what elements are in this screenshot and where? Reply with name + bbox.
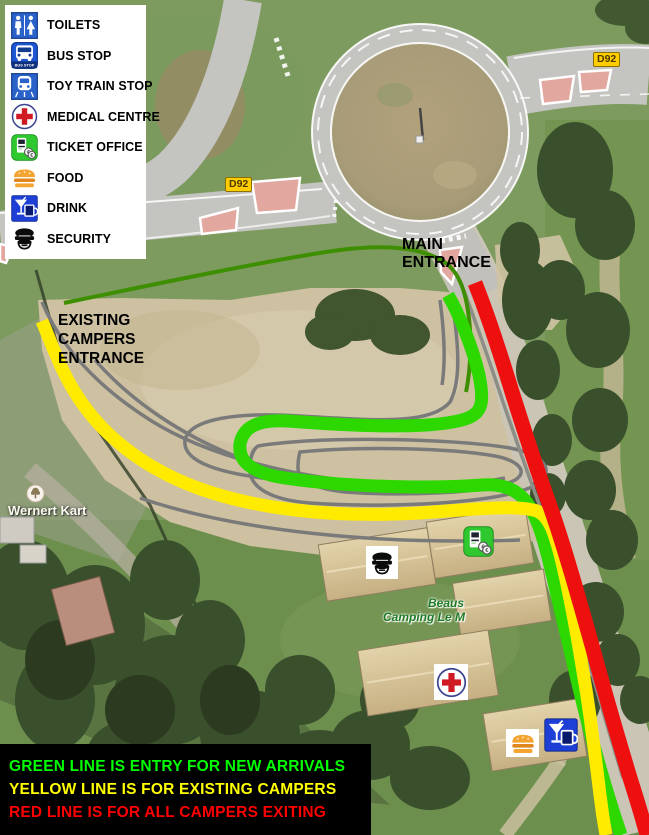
legend-label: MEDICAL CENTRE: [47, 110, 160, 124]
toilets-icon: [11, 12, 38, 39]
security-icon: [11, 225, 38, 252]
ticket-office-icon: [11, 134, 38, 161]
legend-label: FOOD: [47, 171, 84, 185]
medical-centre-map-icon: [434, 664, 468, 700]
camping-site-label: Beaus Camping Le M: [366, 596, 482, 624]
toy-train-icon: [11, 73, 38, 100]
legend-item-drink: DRINK: [11, 193, 146, 224]
road-badge-d92-west: D92: [225, 177, 252, 192]
security-map-icon: [366, 546, 398, 579]
legend-item-security: SECURITY: [11, 224, 146, 255]
svg-text:BUS STOP: BUS STOP: [15, 63, 35, 68]
main-entrance-label: MAIN ENTRANCE: [402, 236, 508, 271]
legend: TOILETS BUS STOP BUS STOP: [5, 5, 146, 259]
yellow-line-note: YELLOW LINE IS FOR EXISTING CAMPERS: [9, 778, 371, 801]
bus-stop-icon: BUS STOP: [11, 42, 38, 69]
existing-campers-entrance-label: EXISTING CAMPERS ENTRANCE: [58, 311, 170, 368]
legend-label: TOILETS: [47, 18, 100, 32]
camping-label-line2: Camping Le M: [383, 610, 465, 624]
road-badge-d92-east: D92: [593, 52, 620, 67]
food-icon: [11, 164, 38, 191]
legend-item-medical-centre: MEDICAL CENTRE: [11, 102, 146, 133]
legend-label: BUS STOP: [47, 49, 111, 63]
legend-item-toilets: TOILETS: [11, 10, 146, 41]
food-map-icon: [506, 729, 539, 757]
legend-label: SECURITY: [47, 232, 111, 246]
medical-icon: [11, 103, 38, 130]
ticket-office-map-icon: [463, 525, 494, 557]
green-line-note: GREEN LINE IS ENTRY FOR NEW ARRIVALS: [9, 755, 371, 778]
wernert-kart-icon: [26, 484, 45, 503]
legend-label: DRINK: [47, 201, 87, 215]
legend-item-toy-train-stop: TOY TRAIN STOP: [11, 71, 146, 102]
legend-item-ticket-office: TICKET OFFICE: [11, 132, 146, 163]
drink-map-icon: [544, 717, 578, 752]
legend-item-bus-stop: BUS STOP BUS STOP: [11, 41, 146, 72]
drink-icon: [11, 195, 38, 222]
wernert-kart-label: Wernert Kart: [8, 503, 87, 518]
red-line-note: RED LINE IS FOR ALL CAMPERS EXITING: [9, 801, 371, 824]
camping-label-line1: Beaus: [388, 596, 504, 610]
legend-label: TOY TRAIN STOP: [47, 79, 153, 93]
route-key-box: GREEN LINE IS ENTRY FOR NEW ARRIVALS YEL…: [0, 744, 371, 835]
annotated-campsite-map: € €: [0, 0, 649, 835]
legend-item-food: FOOD: [11, 163, 146, 194]
legend-label: TICKET OFFICE: [47, 140, 143, 154]
